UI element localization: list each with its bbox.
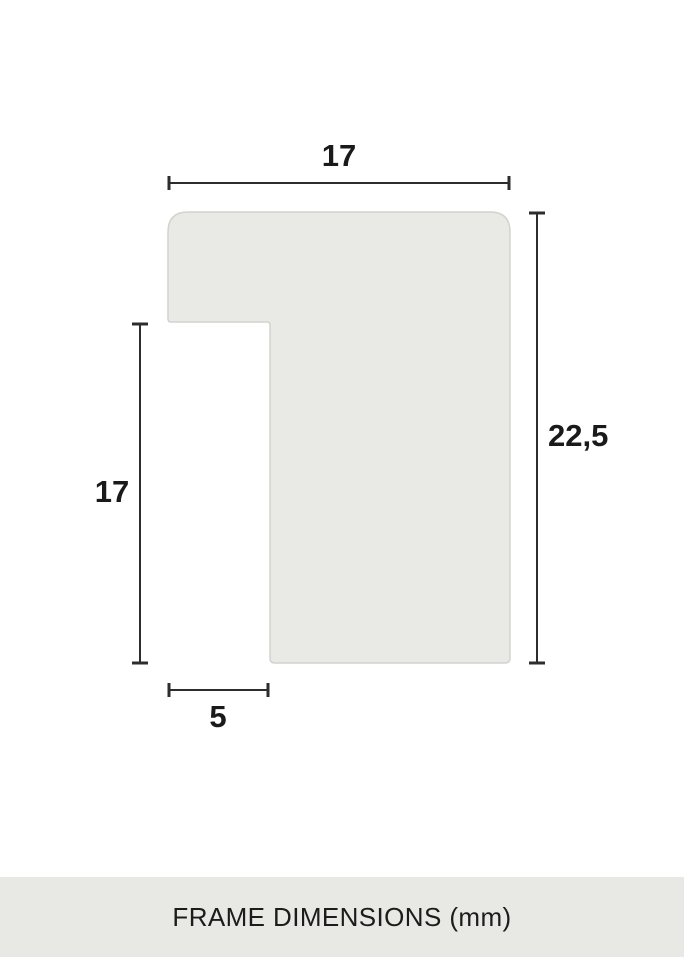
dimension-line-bottom-width [169, 683, 268, 697]
frame-profile-shape [168, 212, 510, 663]
footer-caption: FRAME DIMENSIONS (mm) [172, 902, 511, 933]
dimension-label-right-height: 22,5 [548, 420, 608, 451]
dimension-line-right-height [529, 213, 545, 663]
dimension-line-top-width [169, 176, 509, 190]
dimension-label-bottom-width: 5 [168, 701, 268, 732]
dimension-label-left-height: 17 [84, 476, 140, 507]
dimension-label-top-width: 17 [168, 140, 510, 171]
footer-caption-bar: FRAME DIMENSIONS (mm) [0, 877, 684, 957]
frame-dimension-diagram: 17 22,5 17 5 FRAME DIMENSIONS (mm) [0, 0, 684, 957]
